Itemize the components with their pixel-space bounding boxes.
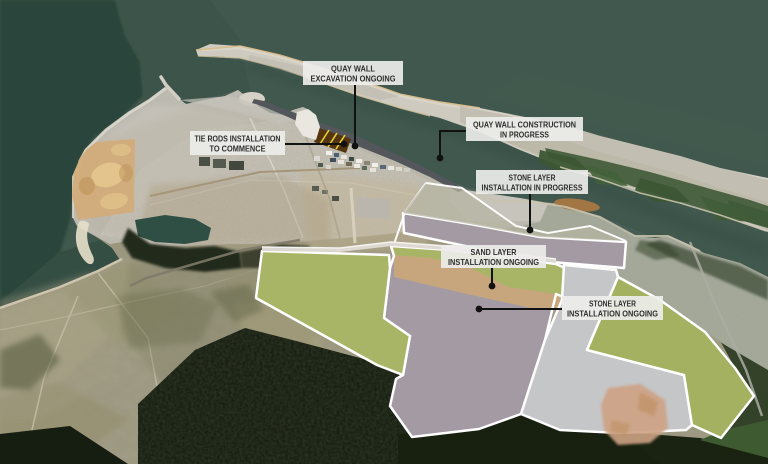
svg-text:IN PROGRESS: IN PROGRESS <box>500 130 549 140</box>
svg-text:SAND LAYER: SAND LAYER <box>471 247 517 257</box>
svg-text:STONE LAYER: STONE LAYER <box>509 173 556 183</box>
svg-text:TIE RODS INSTALLATION: TIE RODS INSTALLATION <box>195 134 281 144</box>
svg-text:QUAY WALL: QUAY WALL <box>331 64 375 74</box>
svg-text:QUAY WALL CONSTRUCTION: QUAY WALL CONSTRUCTION <box>473 120 576 130</box>
svg-text:INSTALLATION ONGOING: INSTALLATION ONGOING <box>448 257 539 267</box>
svg-text:STONE LAYER: STONE LAYER <box>589 299 636 309</box>
svg-text:INSTALLATION ONGOING: INSTALLATION ONGOING <box>567 309 658 319</box>
svg-text:EXCAVATION ONGOING: EXCAVATION ONGOING <box>311 74 396 84</box>
svg-text:TO COMMENCE: TO COMMENCE <box>210 144 266 154</box>
svg-text:INSTALLATION IN PROGRESS: INSTALLATION IN PROGRESS <box>482 183 583 193</box>
